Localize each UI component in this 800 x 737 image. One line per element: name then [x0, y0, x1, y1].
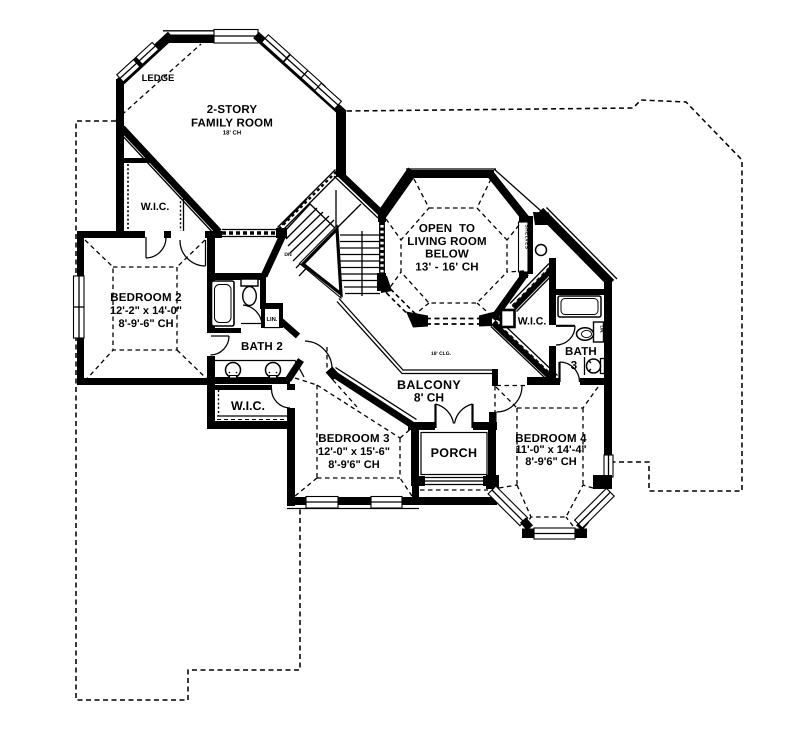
svg-text:DN: DN [284, 252, 292, 258]
svg-text:8'-9'6" CH: 8'-9'6" CH [525, 456, 576, 468]
svg-text:PORCH: PORCH [431, 446, 478, 460]
svg-text:3: 3 [571, 360, 578, 372]
svg-text:8'-9'6" CH: 8'-9'6" CH [328, 459, 379, 471]
svg-text:LIN.: LIN. [267, 317, 278, 323]
svg-text:12'-2" x 14'-0": 12'-2" x 14'-0" [110, 305, 182, 317]
svg-text:18' CH: 18' CH [223, 130, 241, 137]
svg-text:18' CLG.: 18' CLG. [431, 351, 452, 357]
svg-text:12'-0" x 15'-6": 12'-0" x 15'-6" [318, 446, 390, 458]
svg-text:2-STORY: 2-STORY [207, 104, 258, 116]
svg-text:13' - 16' CH: 13' - 16' CH [415, 262, 478, 274]
svg-text:LEDGE: LEDGE [142, 73, 175, 84]
svg-text:W.I.C.: W.I.C. [141, 201, 170, 213]
svg-text:8' CH: 8' CH [414, 391, 444, 405]
svg-text:BATH: BATH [565, 346, 597, 358]
svg-text:LIVING ROOM: LIVING ROOM [407, 236, 487, 248]
svg-text:FAMILY ROOM: FAMILY ROOM [191, 118, 273, 130]
svg-text:OPEN TO: OPEN TO [419, 223, 475, 235]
svg-text:BEDROOM 2: BEDROOM 2 [110, 292, 181, 304]
svg-text:SHELVES: SHELVES [524, 225, 530, 250]
svg-text:BEDROOM 3: BEDROOM 3 [318, 433, 389, 445]
svg-text:11'-0" x 14'-4": 11'-0" x 14'-4" [515, 444, 586, 456]
svg-text:W.I.C.: W.I.C. [231, 399, 265, 413]
svg-text:8'-9'-6" CH: 8'-9'-6" CH [118, 318, 173, 330]
svg-text:BATH 2: BATH 2 [241, 341, 283, 353]
svg-text:W.I.C.: W.I.C. [518, 316, 547, 328]
svg-text:BELOW: BELOW [425, 249, 469, 261]
svg-text:LIN.: LIN. [600, 326, 605, 334]
